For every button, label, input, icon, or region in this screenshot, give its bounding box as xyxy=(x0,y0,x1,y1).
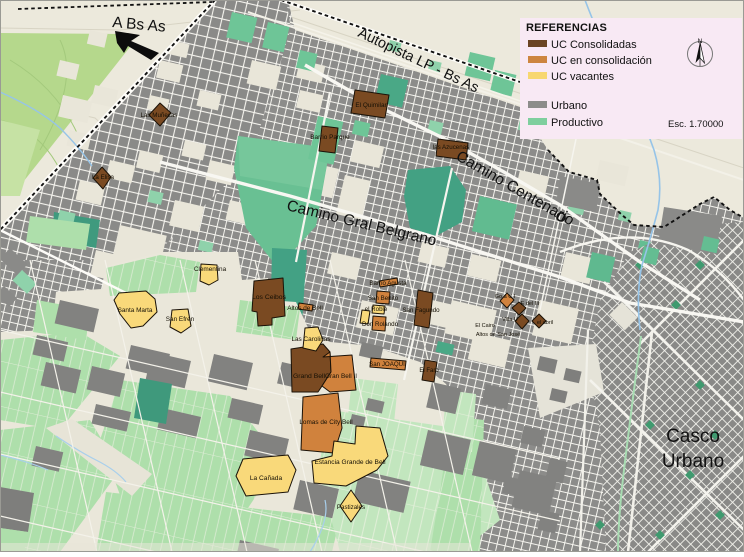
svg-text:El Faro: El Faro xyxy=(419,368,439,374)
svg-text:Las Carolinas: Las Carolinas xyxy=(291,336,330,343)
svg-text:Gran Bell II: Gran Bell II xyxy=(325,373,357,380)
svg-text:Altos de San José: Altos de San José xyxy=(476,332,520,338)
svg-text:Las Muñecas: Las Muñecas xyxy=(141,112,178,119)
svg-text:Lomas de City Bell: Lomas de City Bell xyxy=(299,419,352,426)
svg-text:UC vacantes: UC vacantes xyxy=(551,71,614,83)
svg-text:La Cañada: La Cañada xyxy=(250,475,283,482)
svg-text:Los Ceibos: Los Ceibos xyxy=(252,294,287,301)
svg-text:Productivo: Productivo xyxy=(551,117,603,129)
svg-text:Go a C I: Go a C I xyxy=(495,294,516,300)
svg-text:San Benito: San Benito xyxy=(368,295,399,302)
svg-text:UC en consolidación: UC en consolidación xyxy=(551,55,652,67)
svg-text:Urbano: Urbano xyxy=(551,100,587,112)
svg-text:San Fagundo: San Fagundo xyxy=(402,307,440,314)
svg-text:UC Consolidadas: UC Consolidadas xyxy=(551,39,637,51)
svg-text:Pastizales: Pastizales xyxy=(337,504,365,511)
svg-text:Grand Bell: Grand Bell xyxy=(293,373,326,380)
svg-text:Altos de Bell: Altos de Bell xyxy=(287,305,323,312)
svg-text:Urbano: Urbano xyxy=(662,451,724,472)
svg-text:San JOAQUI: San JOAQUI xyxy=(369,361,405,368)
svg-text:Barrio Parque: Barrio Parque xyxy=(310,134,350,141)
svg-text:Clementina: Clementina xyxy=(194,266,227,273)
svg-text:Don Rolando: Don Rolando xyxy=(362,321,399,328)
svg-text:E del III: E del III xyxy=(521,301,540,307)
svg-text:Esc. 1.70000: Esc. 1.70000 xyxy=(668,119,723,130)
svg-text:Santa Marta: Santa Marta xyxy=(118,307,153,314)
svg-text:REFERENCIAS: REFERENCIAS xyxy=(526,22,607,34)
svg-text:Barrio Agusta: Barrio Agusta xyxy=(369,280,407,287)
svg-text:San Efren: San Efren xyxy=(166,316,195,323)
svg-text:Villa U: Villa U xyxy=(502,317,518,323)
svg-text:el Roble: el Roble xyxy=(365,306,388,313)
svg-text:Casco: Casco xyxy=(666,426,720,447)
svg-text:La Elisa: La Elisa xyxy=(92,174,115,181)
svg-text:Estancia Grande de Bell: Estancia Grande de Bell xyxy=(314,459,386,466)
svg-text:el abril: el abril xyxy=(537,320,553,326)
svg-text:El Quimilar: El Quimilar xyxy=(355,102,387,109)
svg-text:El Cairo: El Cairo xyxy=(475,323,495,329)
